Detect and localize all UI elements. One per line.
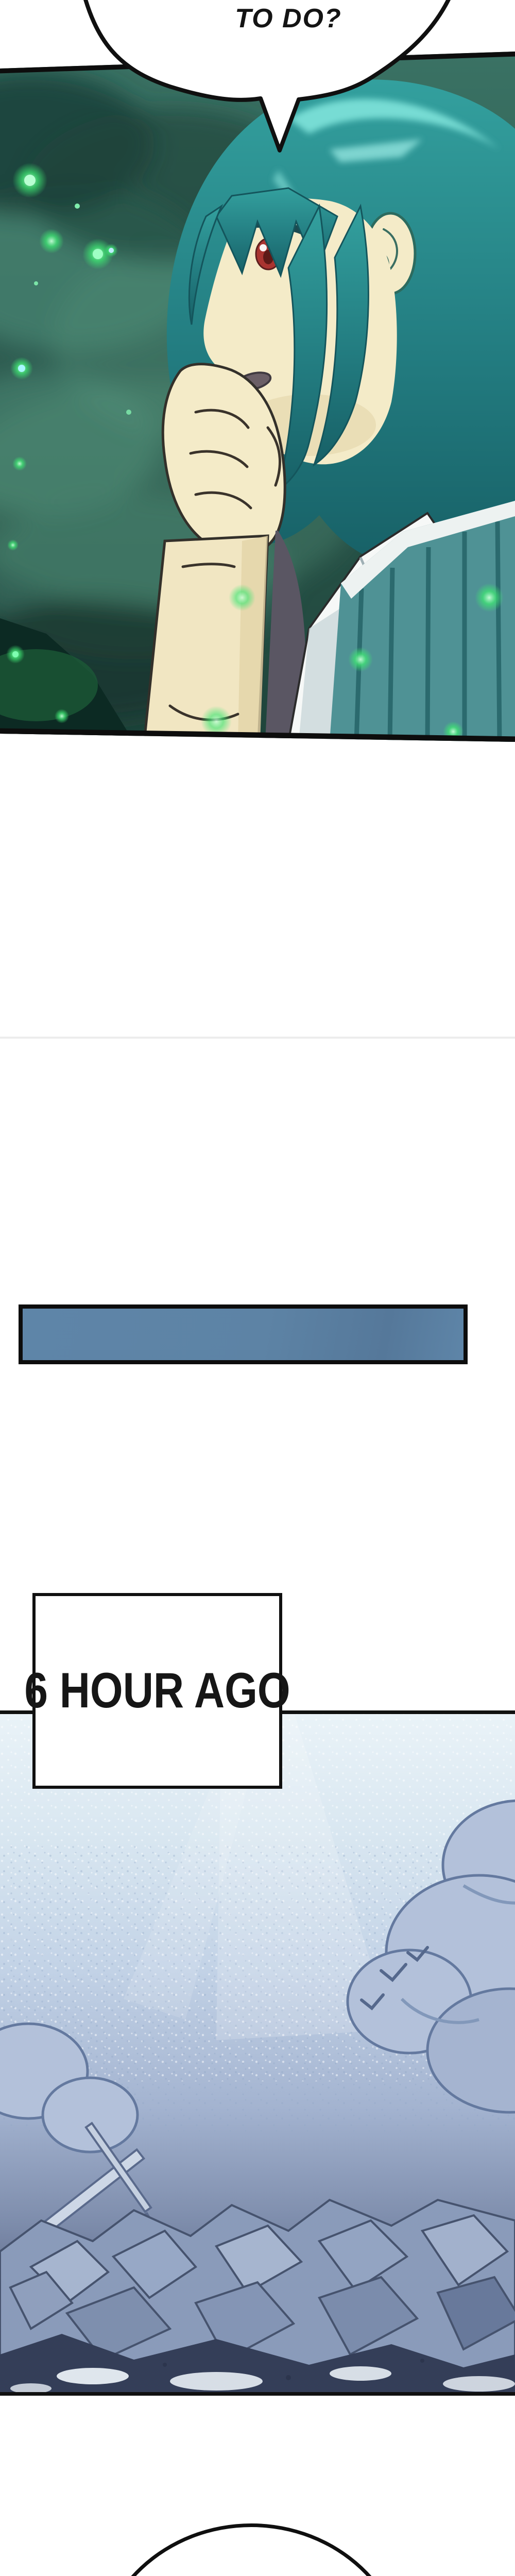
panel-bottom-border xyxy=(0,2392,515,2396)
thought-bubble: IT’S BEEN HALF A YEAR SINCE I REINCARNAT… xyxy=(94,2523,408,2576)
redacted-title-bar xyxy=(19,1304,468,1364)
webtoon-page: TO DO? xyxy=(0,0,515,2576)
timestamp-box: 6 HOUR AGO xyxy=(32,1593,282,1789)
page-seam-line xyxy=(0,1037,515,1039)
speech-bubble-text: TO DO? xyxy=(170,3,407,34)
timestamp-text: 6 HOUR AGO xyxy=(24,1663,290,1720)
arm xyxy=(144,536,268,742)
rubble-scene-panel xyxy=(0,1710,515,2396)
